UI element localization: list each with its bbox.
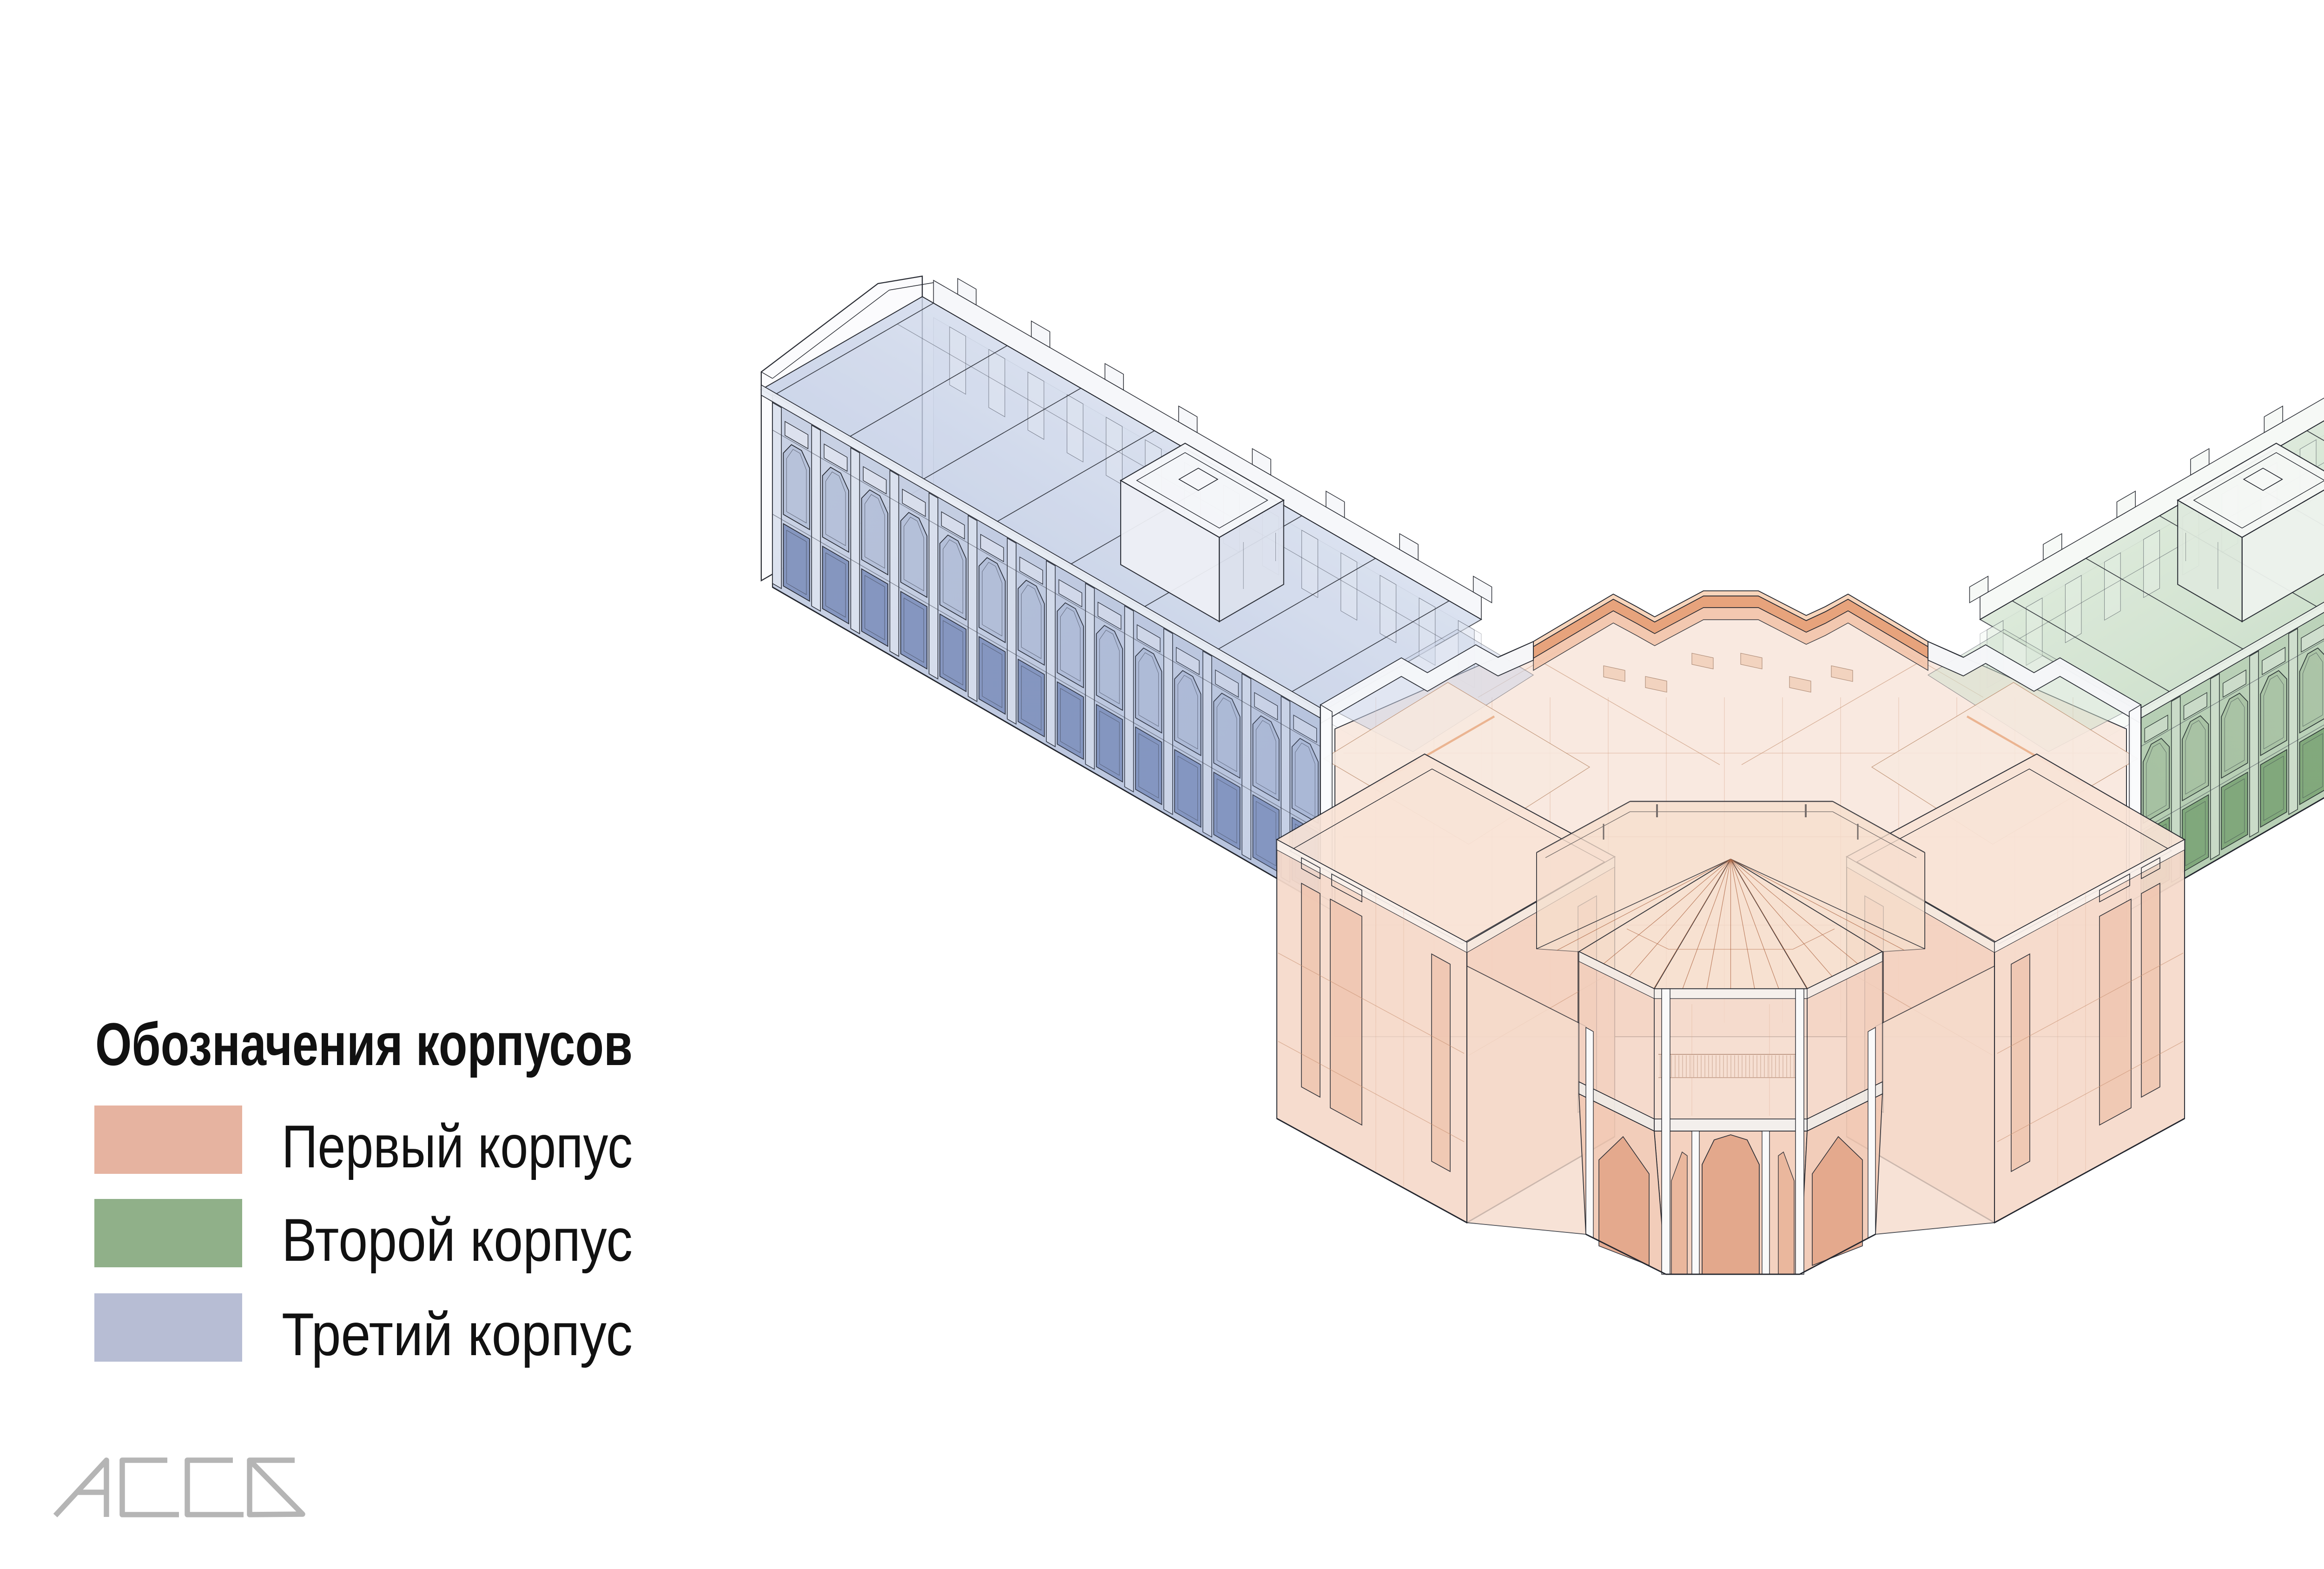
svg-text:Обозначения корпусов: Обозначения корпусов	[95, 1010, 633, 1078]
svg-text:Третий корпус: Третий корпус	[282, 1300, 633, 1368]
svg-text:Первый корпус: Первый корпус	[282, 1112, 633, 1180]
svg-text:Второй корпус: Второй корпус	[282, 1206, 633, 1274]
